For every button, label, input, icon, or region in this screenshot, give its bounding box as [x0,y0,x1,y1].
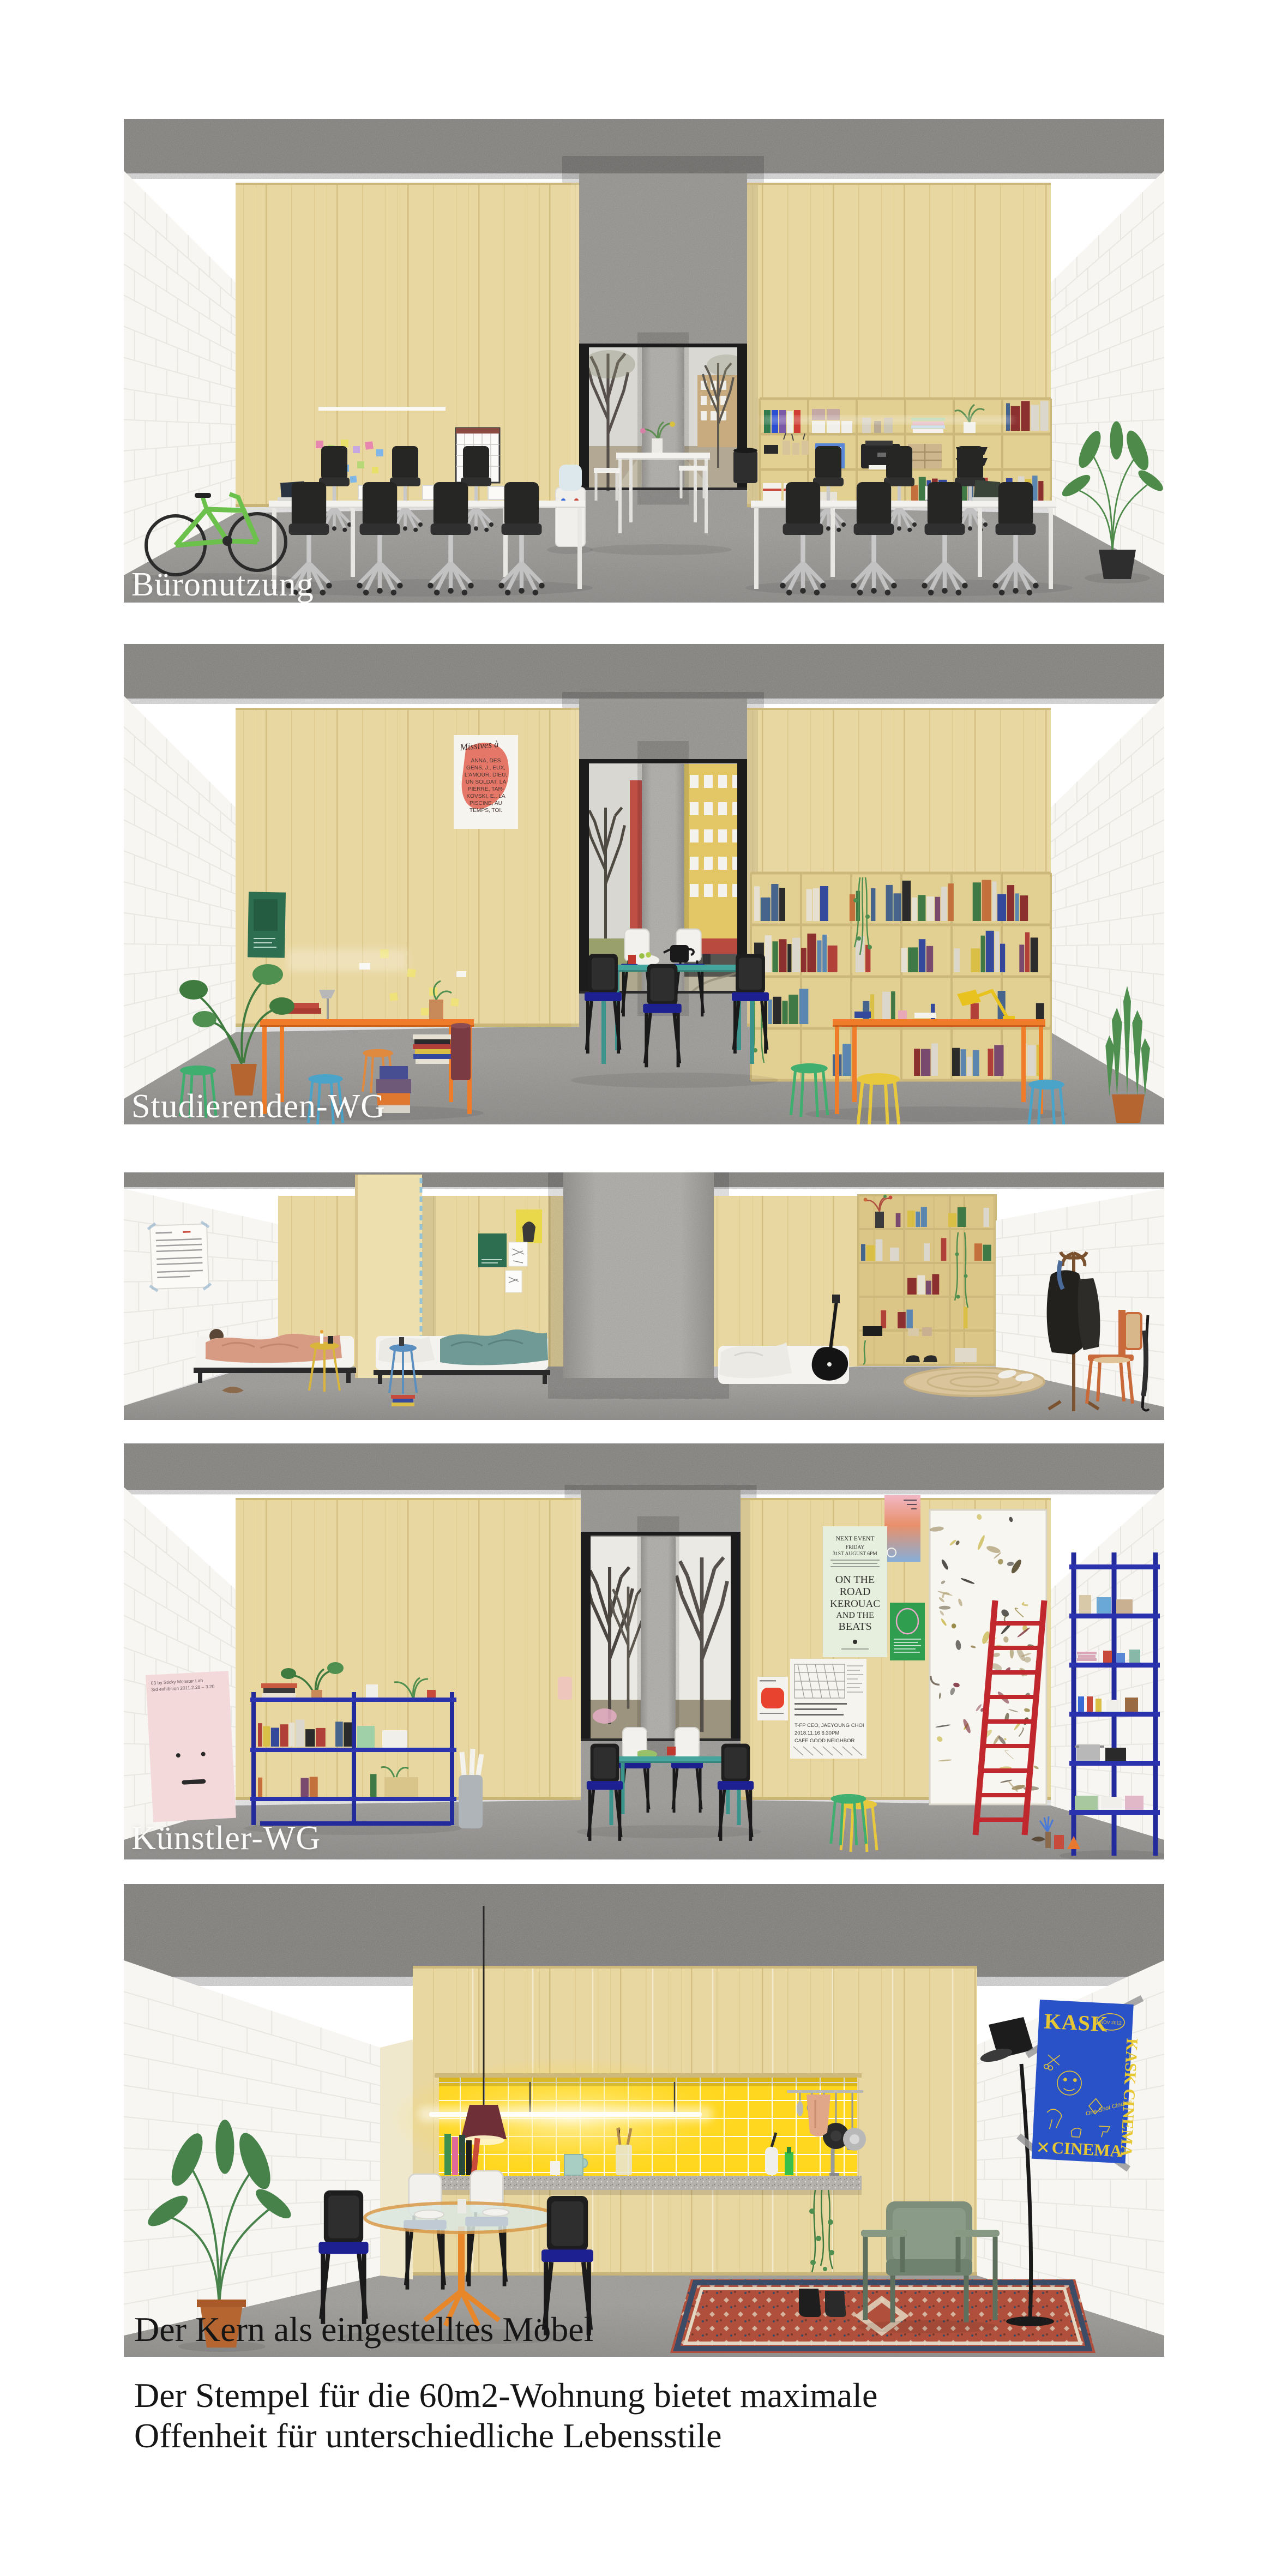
panel-label: Künstler-WG [131,1821,321,1855]
panel-kuenstler-wg: NEXT EVENT FRIDAY 31ST AUGUST 6PM ON THE… [124,1443,1164,1859]
caption-line-2: Offenheit für unterschiedliche Lebenssti… [134,2416,877,2456]
light-glare [762,418,1013,422]
kitchen-towel [806,2094,830,2136]
svg-text:PIERRE, TAR-: PIERRE, TAR- [468,786,504,792]
poster-green [248,892,286,958]
svg-text:GENS, J., EUX,: GENS, J., EUX, [466,765,505,771]
poster-green-circle [890,1603,925,1660]
poster-missives: Missives à ANNA, DESGENS, J., EUX, L'AMO… [454,735,518,829]
svg-text:CAFE GOOD NEIGHBOR: CAFE GOOD NEIGHBOR [795,1738,854,1744]
poster-red-blob [757,1677,788,1720]
poster-gradient [884,1495,920,1562]
laptop [972,480,1003,501]
panel-label: Büronutzung [131,568,314,601]
kern-scene: KASK NOV 2012 KASK CINEMA One Shot Cinem… [124,1884,1164,2357]
wood-wall-right [714,1196,858,1367]
panel-label: Studierenden-WG [131,1090,386,1123]
brick-wall-right [1051,696,1164,1099]
whiteboard-strip [318,407,446,411]
brick-wall-right [1051,171,1164,575]
paper-tube-bin [459,1749,483,1828]
caption-title: Der Kern als eingestelltes Möbel [134,2312,593,2347]
poster-sticky-monster: 03 by Sticky Monster Lab 3rd exhibition … [146,1671,236,1822]
counter-books [444,2134,480,2175]
svg-text:TEMPS, TOI.: TEMPS, TOI. [470,808,502,814]
svg-text:KEROUAC: KEROUAC [830,1598,880,1610]
trash-bin [733,448,757,483]
svg-text:NEXT EVENT: NEXT EVENT [835,1536,874,1542]
schlafkabinen-scene [124,1172,1164,1420]
panel-bueronutzung: Büronutzung [124,119,1164,603]
bueronutzung-scene [124,119,1164,603]
panel-schlafkabinen [124,1172,1164,1420]
svg-text:BEATS: BEATS [838,1621,871,1633]
svg-text:ROAD: ROAD [840,1586,871,1598]
svg-text:AND THE: AND THE [836,1611,874,1620]
poster-next-event: NEXT EVENT FRIDAY 31ST AUGUST 6PM ON THE… [823,1526,887,1657]
svg-text:T-FP CEO, JAEYOUNG CHOI: T-FP CEO, JAEYOUNG CHOI [795,1723,864,1729]
towel-hook [558,1677,572,1700]
svg-text:NOV 2012: NOV 2012 [1100,2019,1122,2026]
svg-text:KOVSKI, E., LA: KOVSKI, E., LA [466,793,505,799]
wood-core-left: Missives à ANNA, DESGENS, J., EUX, L'AMO… [236,708,579,1027]
svg-text:FRIDAY: FRIDAY [846,1545,865,1550]
svg-text:ON THE: ON THE [835,1574,875,1586]
svg-text:2018.11.16 6:30PM: 2018.11.16 6:30PM [795,1730,839,1736]
wood-organizer [908,444,942,468]
bookshelf [751,873,1051,1080]
svg-text:KASK: KASK [1044,2009,1109,2037]
brick-wall-left [124,696,236,1099]
svg-text:ANNA, DES: ANNA, DES [471,758,501,764]
panel-kern: KASK NOV 2012 KASK CINEMA One Shot Cinem… [124,1884,1164,2357]
svg-text:UN SOLDAT, LA: UN SOLDAT, LA [466,779,507,785]
wood-core-left [236,1498,581,1800]
kuenstler-scene: NEXT EVENT FRIDAY 31ST AUGUST 6PM ON THE… [124,1443,1164,1859]
svg-text:CINEMA: CINEMA [1051,2138,1123,2161]
svg-text:31ST AUGUST 6PM: 31ST AUGUST 6PM [833,1551,877,1557]
radio [863,1326,882,1336]
svg-text:PISCINE, AU: PISCINE, AU [470,801,502,806]
svg-text:L'AMOUR, DIEU,: L'AMOUR, DIEU, [465,772,507,778]
tall-shelf [858,1195,996,1365]
caption-text: Der Stempel für die 60m2-Wohnung bietet … [134,2375,877,2456]
caption-line-1: Der Stempel für die 60m2-Wohnung bietet … [134,2375,877,2416]
studierenden-scene: Missives à ANNA, DESGENS, J., EUX, L'AMO… [124,644,1164,1124]
poster-schedule: T-FP CEO, JAEYOUNG CHOI 2018.11.16 6:30P… [790,1659,866,1759]
wall-calendar-sheet [148,1221,211,1291]
panel-studierenden-wg: Missives à ANNA, DESGENS, J., EUX, L'AMO… [124,644,1164,1124]
